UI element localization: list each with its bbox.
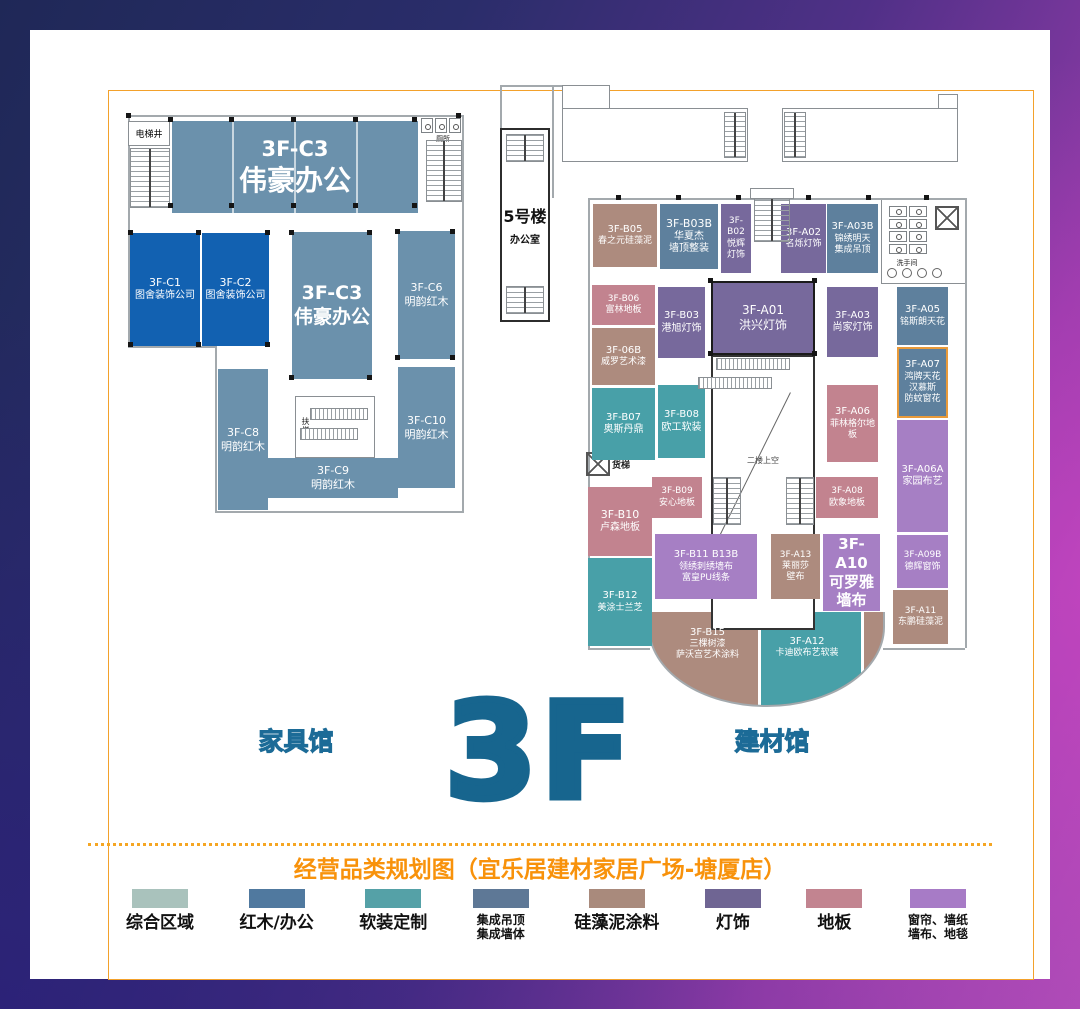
unit-name: 美涂士兰芝	[597, 603, 642, 614]
legend-swatch	[806, 889, 862, 908]
escalator-icon	[300, 428, 358, 440]
unit-id: 3F-A03	[835, 310, 870, 323]
column-dot	[866, 195, 871, 200]
column-dot	[450, 355, 455, 360]
column-dot	[456, 113, 461, 118]
stairs-icon	[426, 140, 462, 202]
legend-swatch	[365, 889, 421, 908]
column-dot	[229, 203, 234, 208]
tower-use: 办公室	[510, 231, 540, 246]
floor-number: 3F	[400, 686, 680, 818]
unit-id: 3F-B03	[664, 310, 699, 323]
column-dot	[708, 351, 713, 356]
column-dot	[168, 117, 173, 122]
unit-3f-a09b: 3F-A09B德辉窗饰	[897, 535, 948, 588]
elevator-shaft-room: 电梯井	[128, 121, 170, 146]
column-dot	[806, 195, 811, 200]
column-dot	[128, 230, 133, 235]
column-dot	[353, 117, 358, 122]
unit-name: 港旭灯饰	[662, 323, 702, 336]
unit-name: 欧象地板	[829, 498, 865, 509]
unit-id: 3F-A11	[905, 606, 937, 617]
column-dot	[412, 117, 417, 122]
legend-swatch	[249, 889, 305, 908]
unit-name: 卡迪欧布艺软装	[775, 648, 838, 659]
stairs-icon	[786, 477, 814, 525]
unit-3f-c6: 3F-C6明韵红木	[398, 231, 455, 359]
column-dot	[450, 229, 455, 234]
unit-id: 3F-C6	[411, 281, 443, 295]
legend-item: 综合区域	[126, 889, 194, 933]
unit-3f-b02: 3F- B02悦辉 灯饰	[721, 204, 751, 273]
legend-item: 软装定制	[359, 889, 427, 933]
legend-item: 地板	[806, 889, 862, 933]
column-dot	[128, 342, 133, 347]
unit-id: 3F-B10	[601, 508, 639, 522]
unit-3f-c8: 3F-C8明韵红木	[218, 369, 268, 510]
unit-id: 3F-A02	[786, 227, 821, 240]
unit-id: 3F-A07	[905, 359, 940, 372]
right-hall-title: 建材馆	[712, 722, 832, 758]
unit-id: 3F-C3	[261, 136, 328, 162]
unit-3f-a03b: 3F-A03B锦绣明天 集成吊顶	[827, 204, 878, 273]
column-dot	[616, 195, 621, 200]
stairs-icon	[713, 477, 741, 525]
unit-id: 3F-A09B	[904, 550, 942, 561]
unit-id: 3F-B08	[664, 409, 699, 422]
column-dot	[229, 117, 234, 122]
escalator-icon	[310, 408, 368, 420]
unit-3f-b12: 3F-B12美涂士兰芝	[588, 558, 652, 646]
unit-name: 明韵红木	[311, 478, 355, 492]
unit-name: 洪兴灯饰	[739, 318, 787, 333]
unit-name: 东鹏硅藻泥	[898, 617, 943, 628]
unit-3f-c2: 3F-C2图舍装饰公司	[202, 233, 269, 346]
column-dot	[291, 117, 296, 122]
dotted-divider	[88, 843, 992, 846]
unit-name: 威罗艺术漆	[601, 357, 646, 368]
escalator-icon	[716, 358, 790, 370]
unit-id: 3F-B11 B13B	[674, 549, 739, 562]
unit-id: 3F-A10	[823, 535, 880, 573]
unit-name: 春之元硅藻泥	[598, 236, 652, 247]
unit-id: 3F-C10	[407, 414, 446, 428]
unit-name: 尚家灯饰	[833, 322, 873, 335]
column-dot	[395, 355, 400, 360]
legend-swatch	[132, 889, 188, 908]
legend-item: 硅藻泥涂料	[574, 889, 659, 933]
unit-3f-a11: 3F-A11东鹏硅藻泥	[893, 590, 948, 644]
unit-3f-b05: 3F-B05春之元硅藻泥	[593, 204, 657, 267]
unit-name: 卢森地板	[600, 522, 640, 535]
column-dot	[924, 195, 929, 200]
corridor-left	[562, 108, 748, 162]
column-dot	[289, 375, 294, 380]
column-dot	[265, 230, 270, 235]
unit-name: 领绣刺绣墙布 富皇PU线条	[679, 562, 733, 585]
floor-plan-poster: { "footer": { "left_hall": "家具馆", "right…	[0, 0, 1080, 1009]
unit-3f-a12: 3F-A12卡迪欧布艺软装	[757, 620, 857, 675]
unit-name: 莱丽莎 壁布	[782, 561, 809, 584]
legend-item: 集成吊顶 集成墙体	[473, 889, 529, 942]
column-dot	[395, 229, 400, 234]
wall	[500, 85, 502, 128]
floor-plan: 电梯井 厕所 扶梯 5号楼 办公室 洗手间 二楼上空 货梯 家具馆 3F 建材馆…	[0, 0, 1080, 1009]
unit-3f-a10: 3F-A10可罗雅 墙布	[823, 534, 880, 611]
unit-3f-c9: 3F-C9明韵红木	[268, 458, 398, 498]
elevator-shaft-label: 电梯井	[135, 127, 162, 140]
unit-id: 3F-A01	[742, 303, 784, 318]
stairs-icon	[130, 148, 170, 208]
unit-name: 明韵红木	[221, 440, 265, 454]
unit-3f-b11: 3F-B11 B13B领绣刺绣墙布 富皇PU线条	[655, 534, 757, 599]
legend-label: 硅藻泥涂料	[574, 913, 659, 933]
legend-swatch	[473, 889, 529, 908]
wall	[965, 198, 967, 648]
unit-name: 名烁灯饰	[785, 239, 821, 250]
wall	[462, 115, 464, 513]
unit-3f-a06: 3F-A06菲林格尔地板	[827, 385, 878, 462]
stairs-icon	[724, 112, 746, 158]
elevator-icon	[935, 206, 959, 230]
column-dot	[196, 230, 201, 235]
wall	[215, 511, 462, 513]
unit-id: 3F-A08	[831, 486, 863, 497]
left-hall-title: 家具馆	[236, 722, 356, 758]
column-dot	[367, 230, 372, 235]
atrium-void-label: 二楼上空	[715, 455, 811, 466]
unit-3f-c10: 3F-C10明韵红木	[398, 367, 455, 488]
unit-name: 锦绣明天 集成吊顶	[834, 234, 870, 257]
escalator-icon	[698, 377, 772, 389]
column-dot	[168, 203, 173, 208]
unit-id: 3F-A13	[780, 550, 812, 561]
unit-id: 3F-A06A	[902, 464, 944, 477]
unit-id: 3F-A03B	[832, 221, 874, 234]
wall	[215, 346, 217, 511]
legend-item: 红木/办公	[240, 889, 314, 933]
unit-3f-a08: 3F-A08欧象地板	[816, 477, 878, 518]
restroom-sinks	[887, 268, 942, 278]
unit-name: 富林地板	[605, 305, 641, 316]
unit-name: 鸿牌天花 汉慕斯 防蚊窗花	[904, 372, 940, 406]
unit-3f-b06: 3F-B06富林地板	[592, 285, 655, 325]
unit-name: 明韵红木	[405, 428, 449, 442]
unit-name: 欧工软装	[662, 422, 702, 435]
toilet-stalls	[421, 118, 461, 133]
unit-3f-c1: 3F-C1图舍装饰公司	[130, 233, 200, 346]
unit-3f-b03: 3F-B03港旭灯饰	[658, 287, 705, 358]
corridor-notch-left	[562, 85, 610, 109]
unit-id: 3F-B06	[608, 294, 639, 305]
unit-3f-a01: 3F-A01洪兴灯饰	[711, 281, 815, 355]
column-dot	[676, 195, 681, 200]
legend-label: 集成吊顶 集成墙体	[477, 913, 525, 942]
unit-name: 伟豪办公	[294, 306, 370, 330]
stairs-icon	[506, 134, 544, 162]
unit-3f-a06a: 3F-A06A家园布艺	[897, 420, 948, 532]
column-dot	[196, 342, 201, 347]
unit-name: 安心地板	[659, 498, 695, 509]
column-dot	[812, 351, 817, 356]
column-dot	[812, 278, 817, 283]
unit-name: 家园布艺	[903, 476, 943, 489]
unit-id: 3F-B12	[603, 590, 638, 603]
column-dot	[367, 375, 372, 380]
unit-id: 3F-A06	[835, 406, 870, 419]
column-dot	[736, 195, 741, 200]
legend-label: 综合区域	[126, 913, 194, 933]
unit-3f-b03b: 3F-B03B华夏杰 墙顶整装	[660, 204, 718, 269]
tower-5-label: 5号楼 办公室	[502, 172, 548, 276]
wall	[883, 648, 965, 650]
legend-label: 软装定制	[359, 913, 427, 933]
unit-id: 3F-B09	[661, 486, 692, 497]
unit-name: 图舍装饰公司	[135, 290, 195, 303]
unit-id: 3F-06B	[606, 345, 641, 358]
corridor-right	[782, 108, 958, 162]
wall	[588, 648, 650, 650]
legend-label: 红木/办公	[240, 913, 314, 933]
unit-name: 菲林格尔地板	[827, 419, 878, 442]
unit-id: 3F-B07	[606, 412, 641, 425]
legend-label: 地板	[817, 913, 851, 933]
unit-id: 3F- B02	[727, 216, 745, 239]
stairs-icon	[784, 112, 806, 158]
legend-swatch	[589, 889, 645, 908]
unit-id: 3F-C2	[220, 276, 252, 290]
unit-3f-c3_mid: 3F-C3伟豪办公	[292, 232, 372, 379]
column-dot	[353, 203, 358, 208]
column-dot	[708, 278, 713, 283]
unit-3f-b07: 3F-B07奥斯丹鼎	[592, 388, 655, 460]
stairs-icon	[506, 286, 544, 314]
unit-3f-a07: 3F-A07鸿牌天花 汉慕斯 防蚊窗花	[897, 347, 948, 418]
unit-name: 伟豪办公	[239, 163, 351, 198]
unit-id: 3F-C1	[149, 276, 181, 290]
legend: 综合区域红木/办公软装定制集成吊顶 集成墙体硅藻泥涂料灯饰地板窗帘、墙纸 墙布、…	[126, 889, 968, 942]
unit-name: 明韵红木	[405, 295, 449, 309]
restroom-stalls	[889, 206, 927, 254]
unit-id: 3F-B03B	[666, 217, 712, 231]
unit-id: 3F-B05	[608, 224, 643, 237]
wall	[128, 346, 215, 348]
wall	[552, 85, 554, 198]
unit-id: 3F-A12	[789, 636, 824, 649]
unit-3f-b10: 3F-B10卢森地板	[588, 487, 652, 556]
legend-swatch	[705, 889, 761, 908]
corridor-notch-right	[938, 94, 958, 109]
legend-swatch	[910, 889, 966, 908]
column-dot	[265, 342, 270, 347]
tower-name: 5号楼	[503, 203, 546, 227]
legend-item: 窗帘、墙纸 墙布、地毯	[908, 889, 968, 942]
unit-id: 3F-A05	[905, 304, 940, 317]
unit-3f-b09: 3F-B09安心地板	[652, 477, 702, 518]
unit-id: 3F-C9	[317, 464, 349, 478]
legend-label: 灯饰	[716, 913, 750, 933]
restroom-label: 洗手间	[884, 258, 930, 268]
column-dot	[412, 203, 417, 208]
unit-3f-b08: 3F-B08欧工软装	[658, 385, 705, 458]
unit-name: 铭斯朗天花	[900, 317, 945, 328]
unit-name: 图舍装饰公司	[206, 290, 266, 303]
unit-name: 德辉窗饰	[904, 562, 940, 573]
legend-item: 灯饰	[705, 889, 761, 933]
column-dot	[289, 230, 294, 235]
unit-3f-b06b: 3F-06B威罗艺术漆	[592, 328, 655, 385]
unit-name: 奥斯丹鼎	[604, 424, 644, 437]
column-dot	[291, 203, 296, 208]
unit-3f-b15: 3F-B15三棵树漆 萨沃宫艺术涂料	[655, 618, 760, 670]
unit-3f-a03: 3F-A03尚家灯饰	[827, 287, 878, 357]
stairs-icon	[754, 198, 790, 242]
unit-3f-a05: 3F-A05铭斯朗天花	[897, 287, 948, 345]
unit-name: 可罗雅 墙布	[829, 573, 874, 611]
unit-id: 3F-B15	[690, 627, 725, 640]
unit-name: 华夏杰 墙顶整装	[669, 231, 709, 256]
unit-name: 三棵树漆 萨沃宫艺术涂料	[676, 639, 739, 662]
poster-caption: 经营品类规划图（宜乐居建材家居广场-塘厦店）	[78, 850, 1002, 884]
unit-name: 悦辉 灯饰	[727, 239, 745, 262]
unit-id: 3F-C8	[227, 426, 259, 440]
unit-3f-a13: 3F-A13莱丽莎 壁布	[771, 534, 820, 599]
legend-label: 窗帘、墙纸 墙布、地毯	[908, 913, 968, 942]
column-dot	[126, 113, 131, 118]
unit-3f-c3_top: 3F-C3伟豪办公	[172, 121, 418, 213]
unit-id: 3F-C3	[302, 282, 363, 306]
